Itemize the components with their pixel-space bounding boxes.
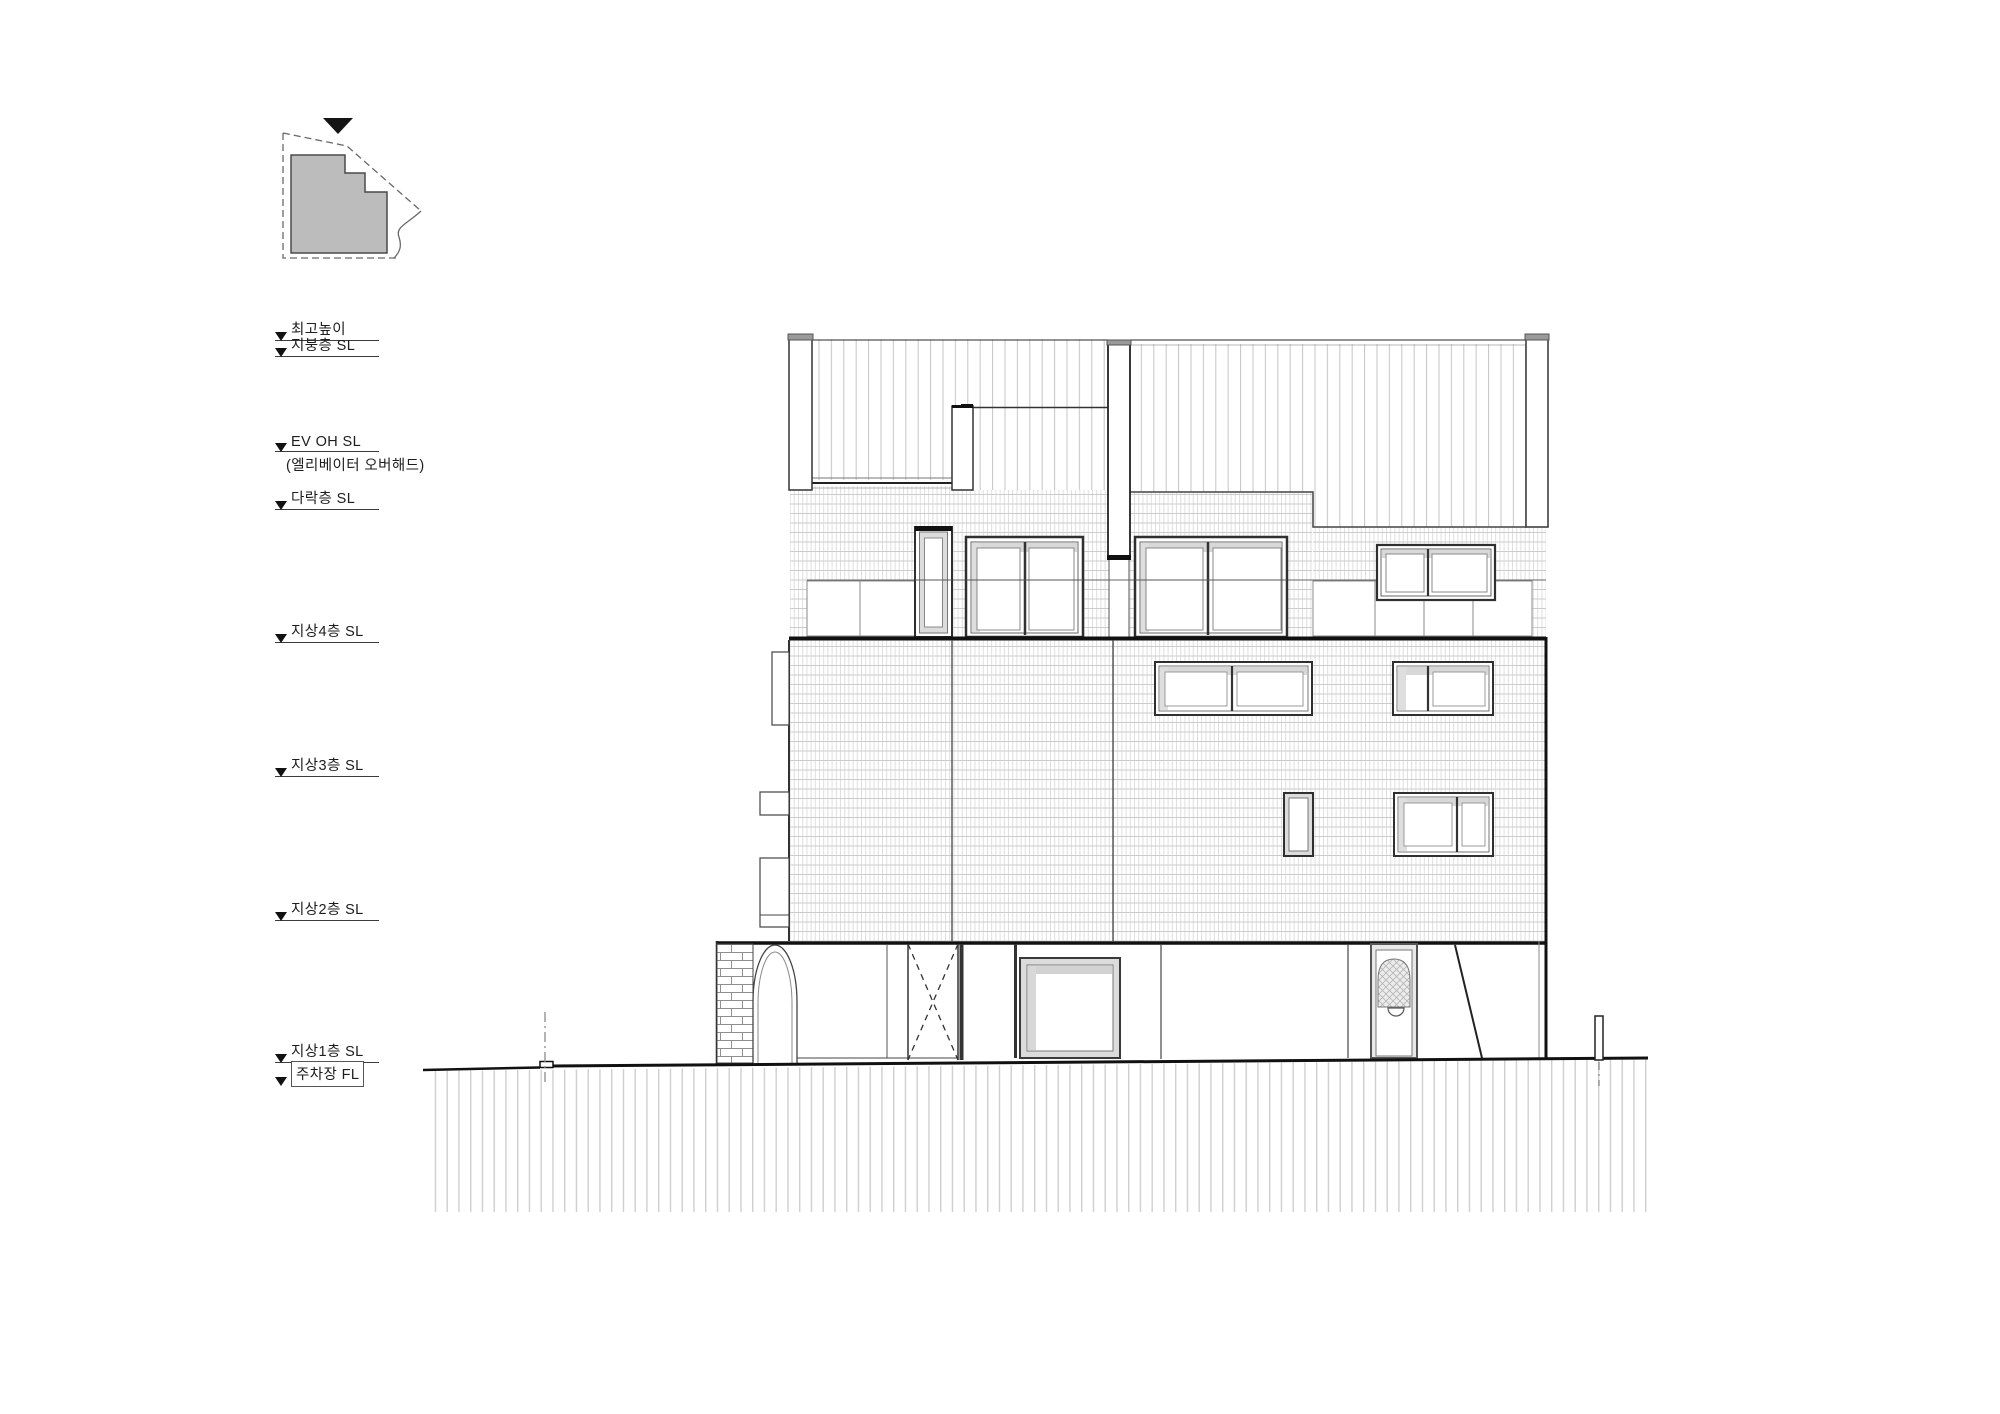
ev-parapet-post <box>952 406 973 490</box>
entrance-door <box>1371 944 1417 1058</box>
level-label-text: 지상3층 SL <box>291 754 364 776</box>
roof-right-lower <box>1313 492 1526 527</box>
window-3f-right <box>1393 662 1493 715</box>
level-label-text: 지상2층 SL <box>291 898 364 920</box>
side-return-box-1 <box>772 652 789 725</box>
railing-panel <box>1313 581 1375 636</box>
level-triangle-icon <box>275 1054 287 1063</box>
side-return-box-2 <box>760 792 789 815</box>
level-triangle-icon <box>275 348 287 357</box>
level-label-parking-fl: 주차장 FL <box>275 1064 379 1085</box>
level-triangle-icon <box>275 501 287 510</box>
level-triangle-icon <box>275 443 287 452</box>
level-triangle-icon <box>275 912 287 921</box>
door-arch-glass <box>1378 959 1410 1007</box>
window-2f-right <box>1394 793 1493 856</box>
level-label-subtext: (엘리베이터 오버해드) <box>286 454 379 475</box>
level-triangle-icon <box>275 1077 287 1086</box>
parapet-post-left-cap <box>788 334 813 340</box>
roof-left <box>812 339 952 480</box>
site-boundary-curve <box>394 211 421 258</box>
parapet-post-right-cap <box>1525 334 1549 340</box>
window-3f-left <box>1155 662 1312 715</box>
key-plan <box>283 118 421 258</box>
window-4f-door-narrow <box>915 526 952 637</box>
level-label-ev-oh-sl: EV OH SL (엘리베이터 오버해드) <box>275 430 379 475</box>
ground-line-left <box>423 1068 540 1071</box>
level-label-text: 다락층 SL <box>291 487 355 509</box>
level-label-f2-sl: 지상2층 SL <box>275 899 379 921</box>
x-brace-panel <box>908 944 958 1060</box>
level-label-f3-sl: 지상3층 SL <box>275 755 379 777</box>
level-label-text: 지상1층 SL <box>291 1040 364 1062</box>
elevator-shaft-chimney <box>1108 342 1130 559</box>
window-4f-terrace-left <box>966 537 1083 637</box>
railing-panel <box>807 581 860 636</box>
roof-right <box>1130 344 1526 492</box>
chimney-base-band <box>1107 555 1131 560</box>
level-label-roof-sl: 지붕층 SL <box>275 335 379 357</box>
parapet-post-left <box>789 336 812 490</box>
ground-step <box>540 1062 553 1068</box>
ground-hatch <box>425 1059 1648 1212</box>
north-triangle-icon <box>323 118 353 134</box>
arched-opening-outer <box>753 945 797 1063</box>
window-2f-narrow <box>1284 793 1313 856</box>
level-label-text: 지붕층 SL <box>291 334 355 356</box>
level-label-f1-sl: 지상1층 SL <box>275 1041 379 1063</box>
chimney-lower <box>1109 560 1129 637</box>
side-return-box-3 <box>760 858 789 927</box>
roof-left-inner <box>952 339 1108 490</box>
level-label-text: 주차장 FL <box>291 1061 364 1087</box>
level-label-text: 지상4층 SL <box>291 620 364 642</box>
ground-floor <box>717 941 1546 1064</box>
level-label-text: EV OH SL <box>291 434 361 451</box>
stair-diagonal <box>1455 945 1482 1058</box>
ev-parapet-cap-tick <box>961 404 973 408</box>
brick-pier <box>717 944 753 1063</box>
window-4f-small-right <box>1377 545 1495 600</box>
level-triangle-icon <box>275 634 287 643</box>
level-label-attic-sl: 다락층 SL <box>275 488 379 510</box>
elevation-sheet: 최고높이 지붕층 SL EV OH SL (엘리베이터 오버해드) 다락층 SL… <box>0 0 2000 1414</box>
building-footprint <box>291 155 387 253</box>
window-4f-terrace-right <box>1135 537 1287 637</box>
level-triangle-icon <box>275 768 287 777</box>
chimney-cap <box>1107 340 1131 345</box>
site-boundary-post-right <box>1595 1016 1603 1060</box>
elevation-drawing <box>0 0 2000 1414</box>
parapet-post-right <box>1526 336 1548 527</box>
level-label-f4-sl: 지상4층 SL <box>275 621 379 643</box>
storefront-window <box>1020 958 1120 1058</box>
railing-panel <box>860 581 915 636</box>
